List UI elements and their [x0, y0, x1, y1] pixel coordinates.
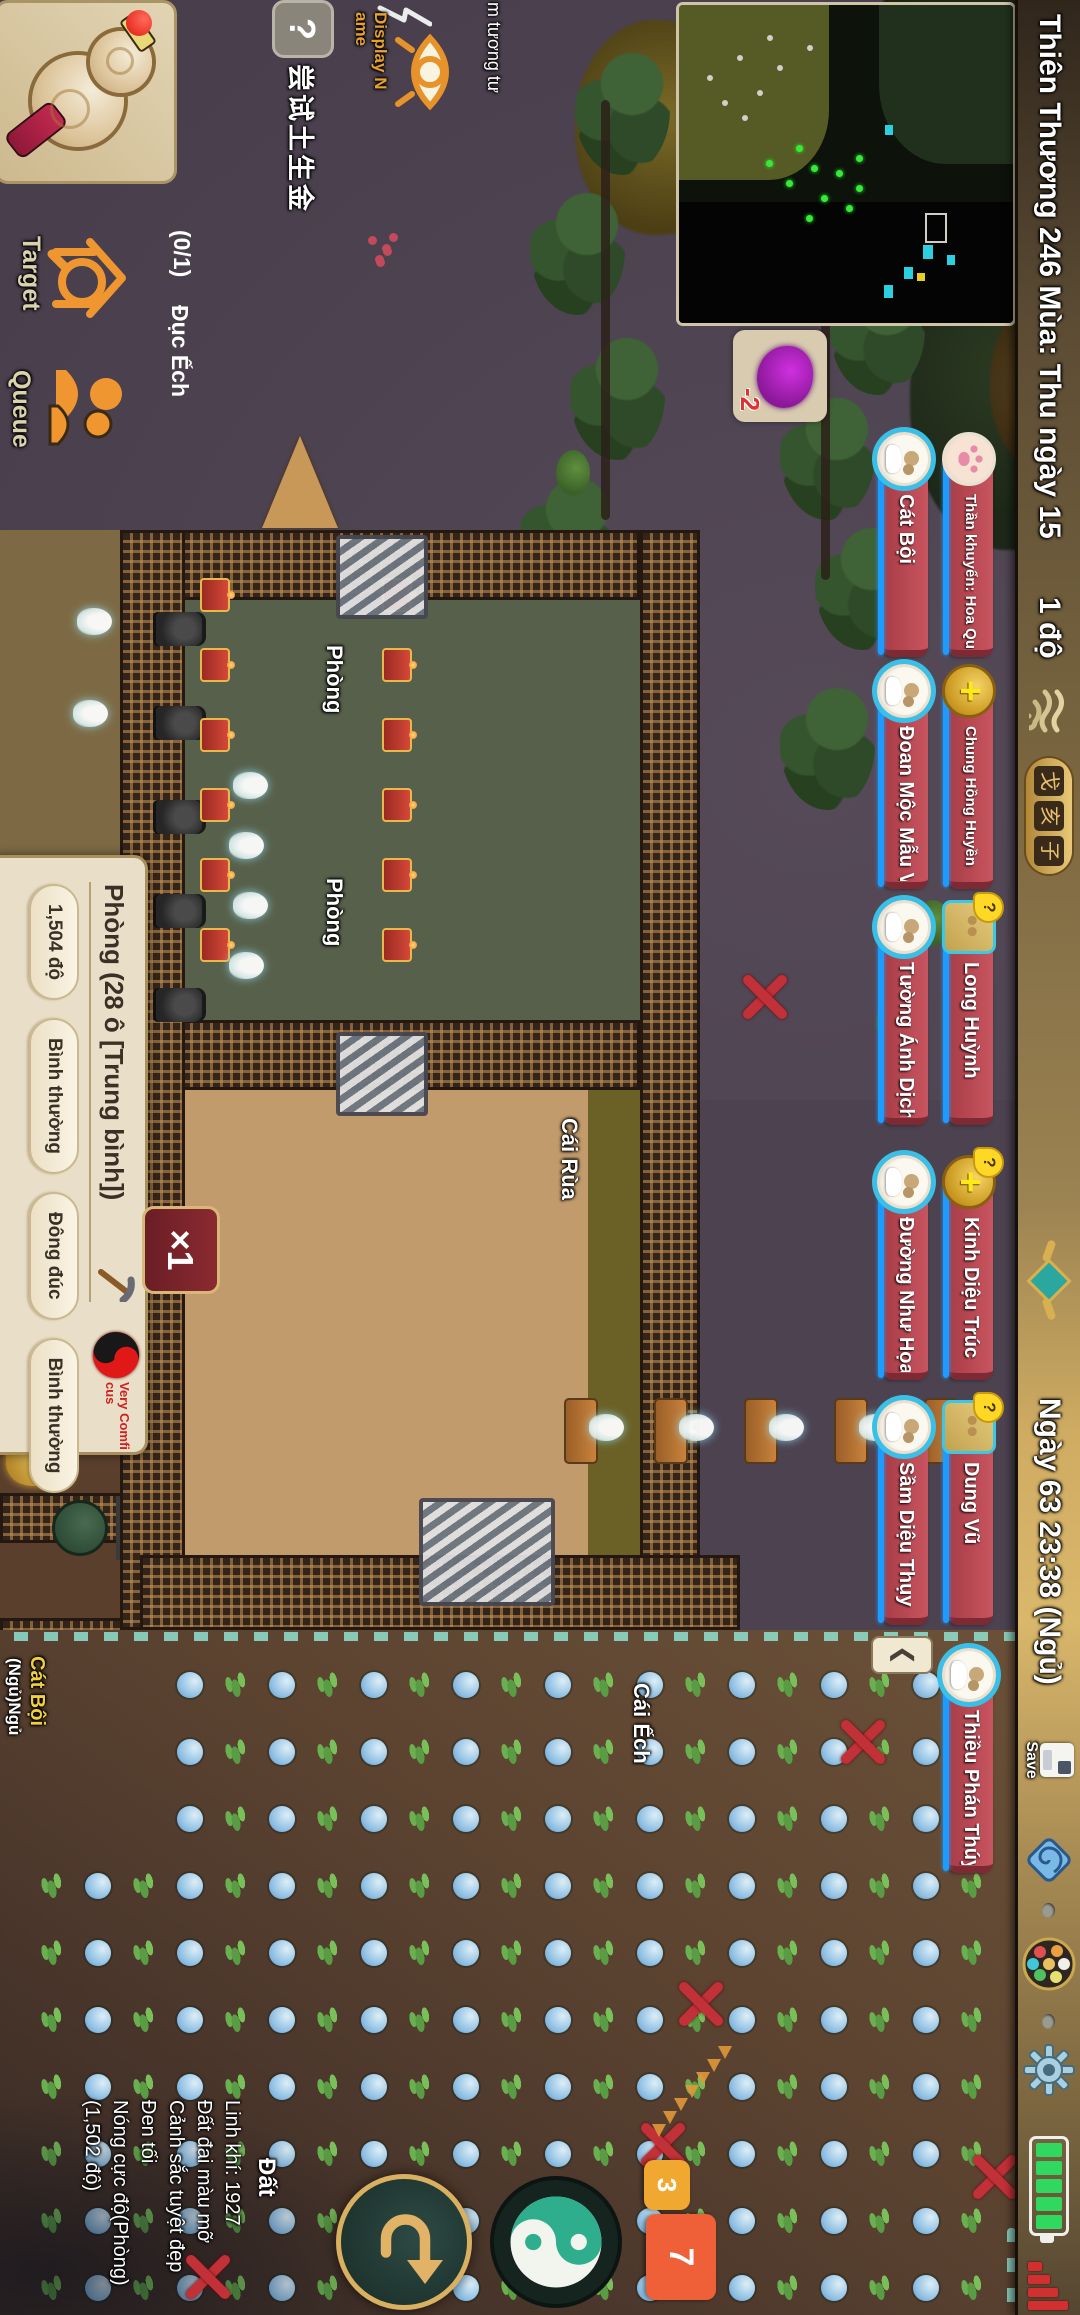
sprout-decor [682, 1871, 712, 1907]
berry-decor [821, 2208, 847, 2234]
room-info-panel: Phòng (28 ô [Trung bình]) Very Comfi cus… [0, 855, 148, 1455]
metal-gate-mid [336, 1032, 428, 1116]
sprout-decor [866, 1871, 896, 1907]
minimap-spirit-dot [821, 195, 828, 202]
altar-table-decor [382, 788, 412, 822]
help-button[interactable]: ? [272, 0, 334, 58]
minimap-terrain [879, 5, 1013, 164]
character-plate[interactable]: Kinh Diệu Trúc+? [940, 1155, 996, 1380]
ghost-decor [73, 700, 108, 727]
character-plate[interactable]: Đoan Mộc Mẫu Vi [875, 664, 931, 889]
minimap-spirit-dot [811, 165, 818, 172]
character-plate[interactable]: Thiều Phán Thúy [940, 1648, 996, 1873]
speed-multiplier-button[interactable]: ×1 [142, 1206, 220, 1294]
portrait-circle-icon[interactable] [877, 1400, 931, 1454]
sprout-decor [866, 1804, 896, 1840]
sprout-decor [406, 1804, 436, 1840]
target-label: Target [16, 236, 45, 328]
purple-turtle-icon [757, 346, 813, 408]
character-plate[interactable]: Tường Ánh Dịch [875, 900, 931, 1125]
sprout-decor [774, 2139, 804, 2175]
minimap-building [884, 285, 893, 298]
sleeper-name-label: Cát Bội [25, 1656, 48, 1726]
minimap-spirit-dot [856, 185, 863, 192]
minimap-spirit-dot [766, 160, 773, 167]
mood-yinyang-icon [87, 1326, 146, 1385]
minimap[interactable] [676, 2, 1016, 326]
berry-decor [177, 1672, 203, 1698]
target-button[interactable]: Target [16, 228, 134, 328]
berry-decor [821, 2275, 847, 2301]
wind-icon [1024, 688, 1074, 746]
sprout-decor [774, 2206, 804, 2242]
berry-decor [545, 1873, 571, 1899]
berry-decor [269, 2007, 295, 2033]
lantern-decor [156, 988, 202, 1022]
sprout-decor [774, 2072, 804, 2108]
sprout-decor [590, 2139, 620, 2175]
berry-decor [545, 1672, 571, 1698]
berry-decor [913, 1806, 939, 1832]
pebble-dot [1042, 2014, 1055, 2029]
altar-table-decor [200, 788, 230, 822]
sprout-decor [590, 1670, 620, 1706]
plate-mood-bar [878, 462, 884, 655]
berry-decor [177, 1739, 203, 1765]
berry-decor [729, 1940, 755, 1966]
tile-stat-line: Đất đai màu mỡ [190, 2100, 218, 2315]
element-hint-text: 尝试土生金 [283, 64, 322, 214]
berry-decor [85, 1873, 111, 1899]
zodiac-seal-ornament: 戈 亥 子 [1026, 758, 1072, 874]
minimap-rock-dot [722, 100, 728, 106]
queue-button[interactable]: Queue [6, 358, 132, 454]
berry-decor [729, 2074, 755, 2100]
sprout-decor [498, 2139, 528, 2175]
sprout-decor [774, 1737, 804, 1773]
sprout-decor [774, 2273, 804, 2309]
character-name: Tường Ánh Dịch [881, 962, 931, 1117]
sprout-decor [406, 1670, 436, 1706]
berry-decor [913, 1739, 939, 1765]
sprout-decor [774, 2005, 804, 2041]
sprout-decor [590, 1871, 620, 1907]
ghost-decor [233, 892, 268, 919]
gear-icon[interactable] [1024, 2042, 1074, 2098]
sprout-decor [38, 1938, 68, 1974]
sprout-decor [222, 1670, 252, 1706]
berry-decor [177, 1806, 203, 1832]
berry-decor [729, 1873, 755, 1899]
altar-table-decor [200, 858, 230, 892]
mood-text: Very Comfi cus [103, 1382, 131, 1450]
jade-ornament [1023, 1238, 1075, 1322]
berry-decor [913, 2074, 939, 2100]
xmark-decor [738, 970, 792, 1024]
portrait-circle-icon[interactable] [877, 1155, 931, 1209]
pathtri-decor [663, 2111, 677, 2124]
berry-decor [269, 1806, 295, 1832]
collapse-list-button[interactable]: ❮ [871, 1636, 933, 1674]
altar-table-decor [382, 648, 412, 682]
pathtri-decor [696, 2072, 710, 2085]
berry-decor [729, 1806, 755, 1832]
question-badge[interactable]: ? [973, 1147, 1004, 1178]
minimap-spirit-dot [836, 170, 843, 177]
berry-decor [821, 1873, 847, 1899]
sprout-decor [774, 1670, 804, 1706]
sprout-decor [866, 1670, 896, 1706]
task-marker-triangle [262, 436, 338, 528]
sprout-decor [682, 1804, 712, 1840]
sprout-decor [498, 1804, 528, 1840]
room-label-1: Phòng [321, 645, 347, 713]
character-plate[interactable]: Sầm Diệu Thụy [875, 1400, 931, 1625]
sprout-decor [130, 1871, 160, 1907]
portrait-circle-icon[interactable] [942, 1648, 996, 1702]
berry-decor [637, 2007, 663, 2033]
sprout-decor [958, 2072, 988, 2108]
sprout-decor [866, 2072, 896, 2108]
minimap-spirit-dot [806, 215, 813, 222]
minimap-spirit-dot [856, 155, 863, 162]
berry-decor [821, 1672, 847, 1698]
temperature-text: 1 độ [1018, 597, 1080, 659]
ghost-decor [77, 608, 112, 635]
minimap-building [947, 255, 955, 265]
character-name: Sầm Diệu Thụy [881, 1462, 931, 1617]
sprout-decor [130, 2005, 160, 2041]
sprout-decor [222, 1871, 252, 1907]
minimap-rock-dot [707, 75, 713, 81]
tile-stat-lines: Linh khí: 1927Đất đai màu mỡCảnh sắc tuy… [78, 2100, 246, 2315]
berry-decor [453, 1806, 479, 1832]
palette-icon[interactable] [1024, 1936, 1074, 1992]
lantern-decor [156, 706, 202, 740]
berry-decor [729, 1739, 755, 1765]
berry-decor [269, 1873, 295, 1899]
display-name-eye-icon[interactable] [385, 30, 470, 114]
top-status-bar: Thiên Thương 246 Mùa: Thu ngày 15 1 độ 戈… [1015, 0, 1080, 2315]
ghost-decor [233, 772, 268, 799]
undo-button[interactable] [336, 2174, 472, 2310]
berry-decor [637, 1873, 663, 1899]
plate-mood-bar [878, 930, 884, 1123]
ghost-decor [769, 1414, 804, 1441]
berry-decor [637, 1806, 663, 1832]
task-name-label: Đục Ếch [166, 305, 193, 397]
berry-decor [545, 2074, 571, 2100]
berry-decor [269, 1672, 295, 1698]
question-badge[interactable]: ? [973, 1392, 1004, 1423]
character-name: Đường Như Họa [881, 1217, 931, 1372]
sprout-decor [314, 1938, 344, 1974]
sleeper-status-label: (Ngủ)Ngủ [4, 1658, 24, 1735]
ghost-decor [589, 1414, 624, 1441]
berry-decor [821, 2141, 847, 2167]
berry-decor [545, 2007, 571, 2033]
plate-mood-bar [943, 462, 949, 655]
character-name: Dung Vũ [946, 1462, 996, 1617]
seal-char: 戈 [1034, 766, 1064, 796]
room-stat-pill: Đông đúc [29, 1192, 79, 1320]
berry-decor [913, 1672, 939, 1698]
room-stat-pill: 1,504 độ [29, 884, 79, 1000]
plate-mood-bar [878, 1185, 884, 1378]
plate-mood-bar [878, 1430, 884, 1623]
sprout-decor [406, 1938, 436, 1974]
character-plate[interactable]: Cát Bội [875, 432, 931, 657]
minimap-marker [917, 273, 925, 281]
sprout-decor [498, 1670, 528, 1706]
sprout-decor [774, 1804, 804, 1840]
character-name: Đoan Mộc Mẫu Vi [881, 726, 931, 881]
berry-decor [729, 2208, 755, 2234]
plate-mood-bar [943, 694, 949, 887]
berry-decor [913, 1940, 939, 1966]
berry-decor [821, 2007, 847, 2033]
tile-tooltip: Đất Linh khí: 1927Đất đai màu mỡCảnh sắc… [78, 2100, 280, 2315]
sprout-decor [406, 2005, 436, 2041]
sprout-decor [682, 1737, 712, 1773]
berry-decor [85, 1940, 111, 1966]
berry-decor [361, 1672, 387, 1698]
portrait-circle-icon[interactable] [877, 900, 931, 954]
sprout-decor [774, 1938, 804, 1974]
berry-decor [821, 2074, 847, 2100]
sprout-decor [958, 2206, 988, 2242]
minimap-rock-dot [777, 65, 783, 71]
berry-decor [453, 1873, 479, 1899]
sprout-decor [406, 1871, 436, 1907]
berry-decor [361, 1873, 387, 1899]
sprout-decor [958, 1871, 988, 1907]
sprout-decor [314, 1804, 344, 1840]
sprout-decor [498, 2072, 528, 2108]
berry-decor [729, 1672, 755, 1698]
minimap-unexplored [679, 202, 1013, 323]
sprout-decor [866, 2206, 896, 2242]
divider [89, 882, 91, 1302]
berry-decor [453, 1672, 479, 1698]
minimap-spirit-dot [846, 205, 853, 212]
sprout-decor [682, 1670, 712, 1706]
berry-decor [361, 1739, 387, 1765]
sprout-decor [590, 2005, 620, 2041]
day-time-text: Ngày 63 23:38 (Ngủ) [1018, 1398, 1080, 1685]
minimap-building [923, 245, 933, 259]
berry-decor [729, 2275, 755, 2301]
sprout-decor [314, 2005, 344, 2041]
sprout-decor [866, 1938, 896, 1974]
character-plate[interactable]: Long Huỳnh? [940, 900, 996, 1125]
berry-decor [545, 1806, 571, 1832]
coin-plus-icon[interactable]: + [942, 664, 996, 718]
berry-decor [913, 2208, 939, 2234]
save-indicator[interactable]: Save [1018, 1728, 1076, 1792]
notification-badge-small[interactable]: 3 [644, 2160, 690, 2210]
sprout-decor [866, 2273, 896, 2309]
sprout-decor [958, 1938, 988, 1974]
notification-dot [126, 10, 152, 36]
sprout-decor [866, 2005, 896, 2041]
berry-decor [361, 1806, 387, 1832]
plate-mood-bar [943, 1678, 949, 1871]
lantern-decor [156, 612, 202, 646]
sprout-decor [314, 1670, 344, 1706]
lantern-decor [156, 894, 202, 928]
berry-decor [821, 1940, 847, 1966]
pet-label-turtle[interactable]: Cái Rùa [556, 1118, 582, 1200]
minimap-rock-dot [737, 55, 743, 61]
minimap-spirit-dot [796, 145, 803, 152]
queue-label: Queue [6, 370, 35, 454]
save-label: Save [1022, 1728, 1040, 1792]
berry-decor [637, 1940, 663, 1966]
character-name: Thần khuyển: Hoa Quyển [946, 494, 996, 649]
seal-char: 亥 [1034, 801, 1064, 831]
character-plate[interactable]: Chung Hồng Huyền+ [940, 664, 996, 889]
berry-decor [177, 1940, 203, 1966]
pet-label-frog[interactable]: Cái Ếch [628, 1683, 654, 1764]
minimap-spirit-dot [786, 180, 793, 187]
pathtri-decor [652, 2124, 666, 2137]
altar-table-decor [382, 858, 412, 892]
character-plate[interactable]: Dung Vũ? [940, 1400, 996, 1625]
berry-decor [453, 1940, 479, 1966]
berry-decor [177, 1873, 203, 1899]
altar-table-decor [200, 578, 230, 612]
altar-table-decor [200, 648, 230, 682]
sprout-decor [498, 2005, 528, 2041]
pathtri-decor [685, 2085, 699, 2098]
berry-decor [453, 2074, 479, 2100]
character-plate[interactable]: Thần khuyển: Hoa Quyển [940, 432, 996, 657]
debuff-card-turtle[interactable]: -2 [733, 330, 827, 422]
sprout-decor [590, 2072, 620, 2108]
berry-decor [913, 2141, 939, 2167]
berry-decor [177, 2007, 203, 2033]
portrait-circle-icon[interactable] [877, 664, 931, 718]
metal-gate-west [336, 535, 428, 619]
altar-table-decor [382, 718, 412, 752]
pathtri-decor [674, 2098, 688, 2111]
sprout-decor [406, 1737, 436, 1773]
minimap-rock-dot [742, 115, 748, 121]
sprout-decor [866, 2139, 896, 2175]
pathtri-decor [707, 2059, 721, 2072]
metal-gate-east [419, 1498, 555, 1606]
character-plate[interactable]: Đường Như Họa [875, 1155, 931, 1380]
berry-decor [637, 2074, 663, 2100]
berry-decor [913, 2275, 939, 2301]
room-stat-pills: 1,504 độBình thườngĐông đúcBình thường [29, 884, 79, 1493]
xmark-decor [968, 2150, 1022, 2204]
save-icon [1040, 1743, 1074, 1777]
sprout-decor [682, 1938, 712, 1974]
question-badge[interactable]: ? [973, 892, 1004, 923]
portrait-circle-icon[interactable] [877, 432, 931, 486]
tile-stat-line: (1,502 độ) [78, 2100, 106, 2315]
sprout-decor [222, 1737, 252, 1773]
plate-mood-bar [878, 694, 884, 887]
notification-badge-large[interactable]: 7 [646, 2214, 716, 2300]
altar-table-decor [200, 928, 230, 962]
tile-stat-line: Cảnh sắc tuyệt đẹp [162, 2100, 190, 2315]
sprout-decor [774, 1871, 804, 1907]
character-name: Kinh Diệu Trúc [946, 1217, 996, 1372]
berry-decor [729, 2141, 755, 2167]
ghost-decor [679, 1414, 714, 1441]
minimap-building [904, 267, 913, 279]
ghost-decor [229, 952, 264, 979]
rotated-game-stage: Cái Rùa Cái Ếch Phòng Phòng Cát Bội (Ngủ… [0, 0, 1080, 2315]
season-date-text: Thiên Thương 246 Mùa: Thu ngày 15 [1018, 14, 1080, 539]
character-name: Long Huỳnh [946, 962, 996, 1117]
tile-stat-line: Đen tối [134, 2100, 162, 2315]
tile-title: Đất [252, 2158, 280, 2315]
sprout-decor [590, 1804, 620, 1840]
berry-decor [361, 2007, 387, 2033]
berry-decor [545, 2141, 571, 2167]
pathtri-decor [718, 2046, 732, 2059]
sprout-decor [590, 1737, 620, 1773]
spiral-shell-icon[interactable] [1024, 1834, 1074, 1886]
minimap-viewport-frame [925, 213, 947, 243]
sprout-decor [314, 1871, 344, 1907]
minimap-terrain [679, 5, 829, 180]
altar-table-decor [200, 718, 230, 752]
sprout-decor [958, 2273, 988, 2309]
berry-decor [85, 2007, 111, 2033]
character-name: Thiều Phán Thúy [946, 1710, 996, 1865]
berry-decor [545, 1940, 571, 1966]
berry-decor [269, 1739, 295, 1765]
berry-decor [453, 1739, 479, 1765]
character-name: Cát Bội [881, 494, 931, 649]
pebble-dot [1042, 1903, 1055, 1918]
seal-char: 子 [1034, 836, 1064, 866]
plate-mood-bar [943, 1430, 949, 1623]
paw-icon[interactable] [942, 432, 996, 486]
room-stat-pill: Bình thường [29, 1338, 79, 1494]
berry-decor [913, 1873, 939, 1899]
berry-decor [361, 1940, 387, 1966]
berry-decor [821, 1806, 847, 1832]
altar-table-decor [382, 928, 412, 962]
ghost-decor [229, 832, 264, 859]
sprout-decor [130, 1938, 160, 1974]
berry-decor [269, 1940, 295, 1966]
room-stat-pill: Bình thường [29, 1018, 79, 1174]
berry-decor [453, 2007, 479, 2033]
plant-name-label: m tương tư [483, 2, 504, 93]
sprout-decor [222, 1804, 252, 1840]
sprout-decor [222, 1938, 252, 1974]
plate-mood-bar [943, 930, 949, 1123]
yinyang-button[interactable] [490, 2176, 622, 2308]
berry-decor [729, 2007, 755, 2033]
minimap-rock-dot [807, 45, 813, 51]
sprout-decor [314, 1737, 344, 1773]
minimap-rock-dot [767, 35, 773, 41]
plate-mood-bar [943, 1185, 949, 1378]
sprout-decor [498, 1938, 528, 1974]
sprout-decor [38, 1871, 68, 1907]
minimap-rock-dot [757, 90, 763, 96]
battery-icon [1029, 2136, 1069, 2236]
berry-decor [913, 2007, 939, 2033]
